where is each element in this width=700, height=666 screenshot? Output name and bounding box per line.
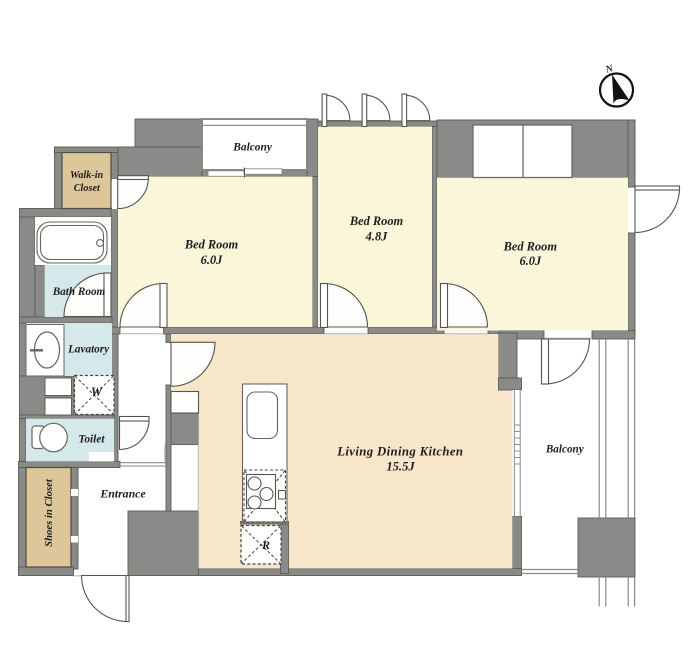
svg-text:Lavatory: Lavatory	[67, 344, 109, 356]
svg-text:Bath Room: Bath Room	[52, 286, 106, 298]
svg-text:Walk-in: Walk-in	[70, 170, 104, 181]
svg-text:Balcony: Balcony	[545, 444, 584, 456]
svg-text:W: W	[91, 385, 103, 399]
svg-text:Shoes in Closet: Shoes in Closet	[43, 478, 55, 547]
svg-text:Closet: Closet	[74, 183, 101, 194]
svg-text:Bed Room: Bed Room	[349, 214, 404, 228]
svg-text:R: R	[261, 538, 270, 552]
svg-text:Balcony: Balcony	[232, 142, 273, 154]
svg-text:6.0J: 6.0J	[519, 254, 541, 268]
svg-text:Toilet: Toilet	[78, 434, 105, 446]
svg-text:4.8J: 4.8J	[365, 230, 388, 244]
svg-text:Bed Room: Bed Room	[503, 240, 558, 254]
svg-text:15.5J: 15.5J	[386, 460, 415, 474]
svg-text:Living Dining Kitchen: Living Dining Kitchen	[336, 445, 463, 459]
svg-text:Entrance: Entrance	[99, 487, 145, 501]
svg-text:6.0J: 6.0J	[201, 253, 223, 267]
svg-text:Bed Room: Bed Room	[184, 238, 239, 252]
